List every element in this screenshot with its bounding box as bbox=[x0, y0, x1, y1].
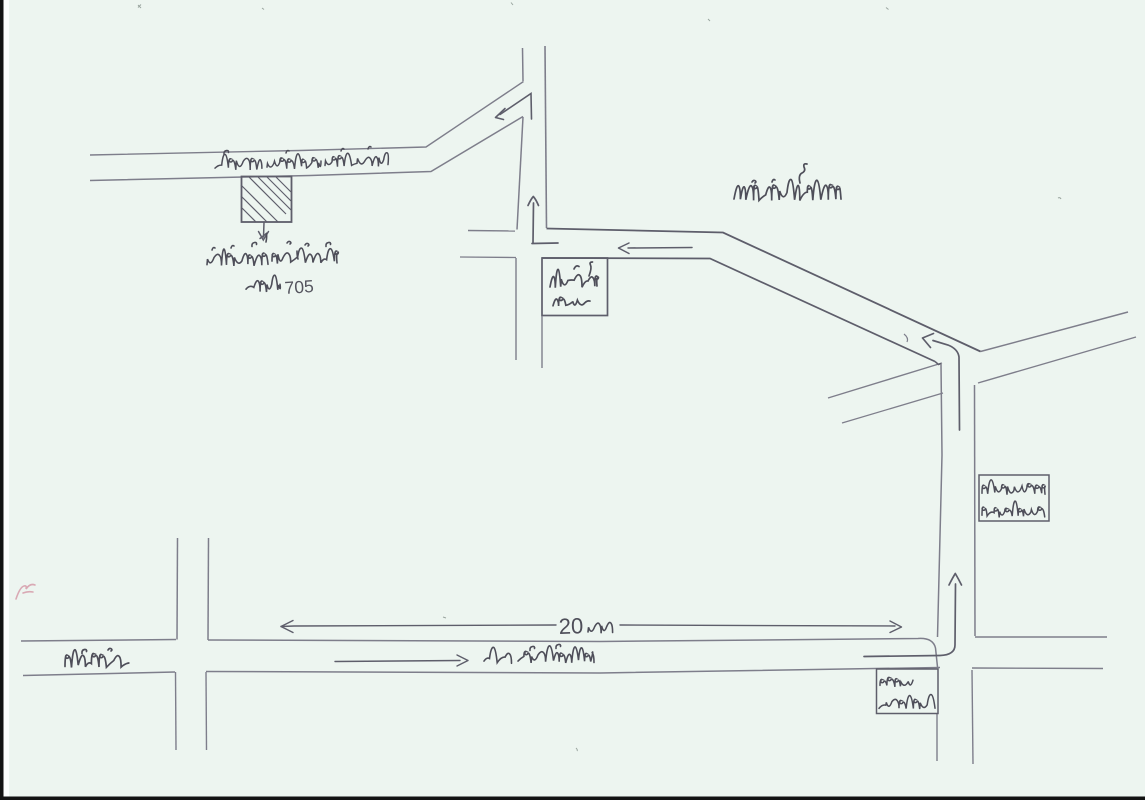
svg-text:20: 20 bbox=[558, 613, 583, 639]
svg-text:705: 705 bbox=[284, 276, 315, 298]
